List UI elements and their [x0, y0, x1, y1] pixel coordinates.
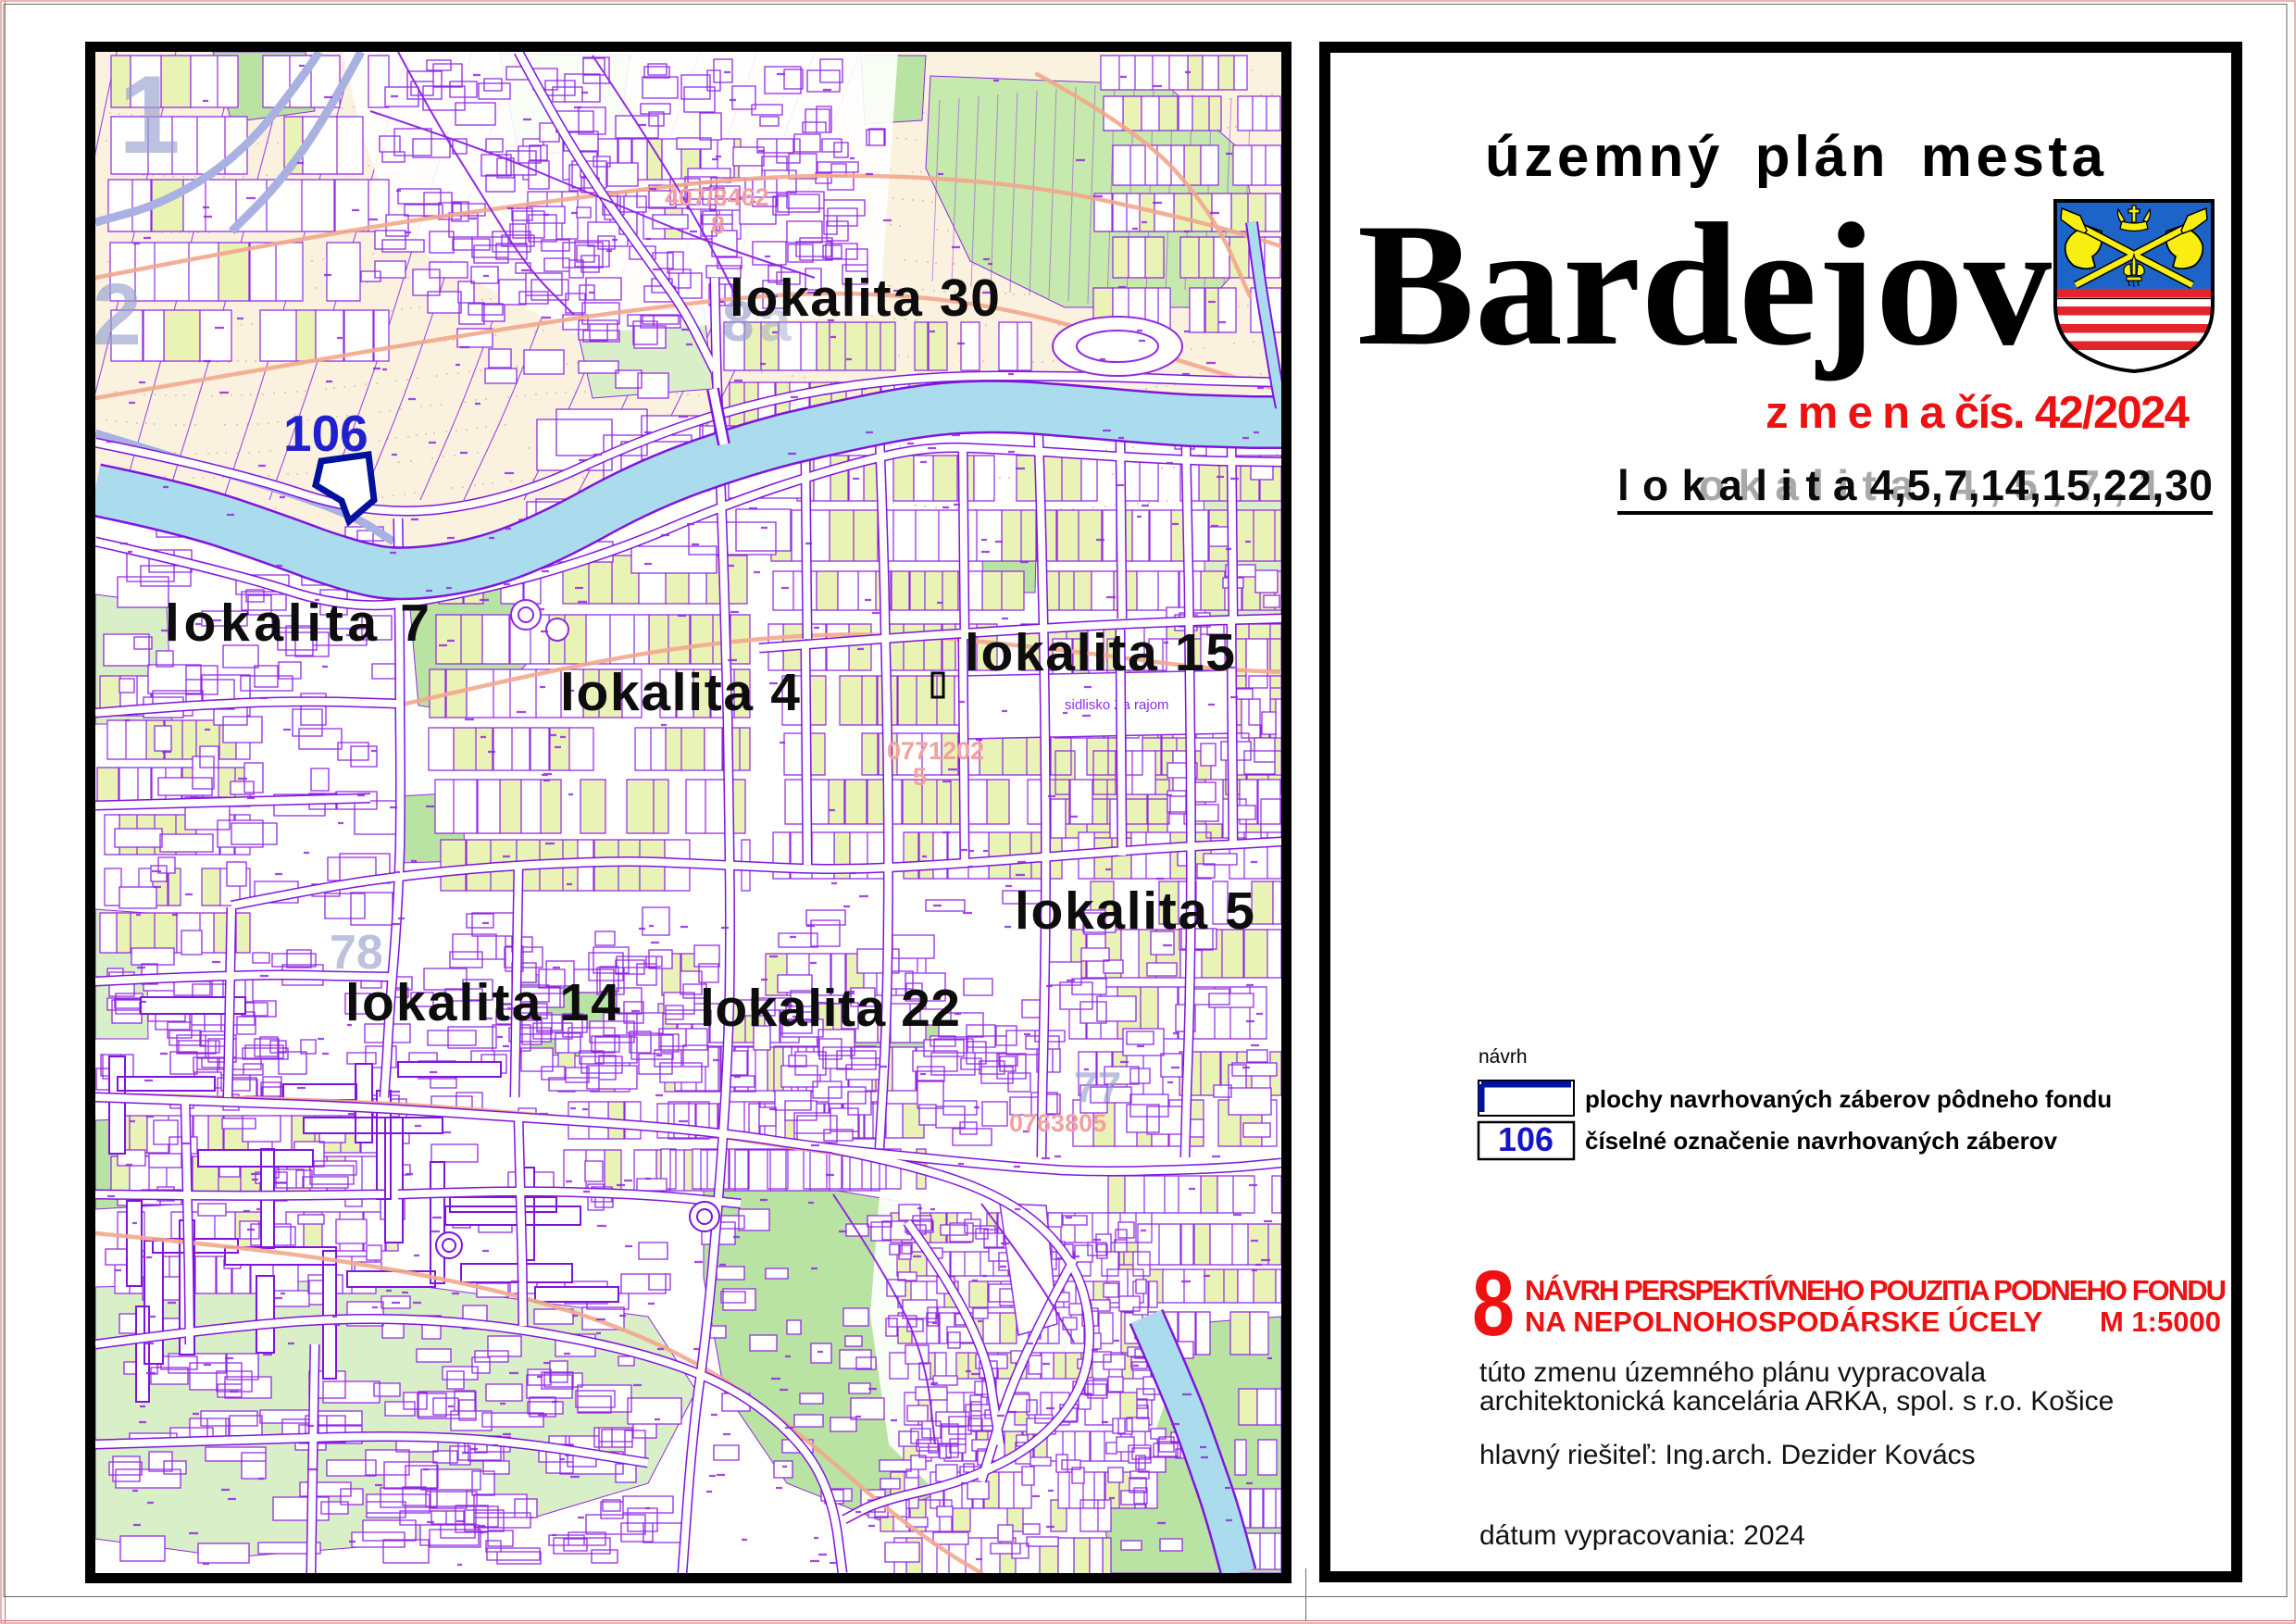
svg-text:územný plán mesta: územný plán mesta	[1485, 125, 2105, 189]
svg-text:túto zmenu územného plánu vypr: túto zmenu územného plánu vypracovala	[1479, 1357, 1986, 1388]
svg-text:plochy navrhovaných záberov pô: plochy navrhovaných záberov pôdneho fond…	[1585, 1085, 2112, 1113]
svg-text:2: 2	[93, 266, 142, 364]
svg-text:8: 8	[1472, 1252, 1515, 1355]
svg-text:NA NEPOLNOHOSPODÁRSKE ÚCELY: NA NEPOLNOHOSPODÁRSKE ÚCELY	[1525, 1305, 2043, 1338]
svg-text:77: 77	[1074, 1063, 1121, 1111]
svg-text:1: 1	[119, 53, 181, 177]
svg-text:0763805: 0763805	[1009, 1109, 1106, 1137]
svg-text:M 1:5000: M 1:5000	[2100, 1305, 2221, 1338]
svg-text:78: 78	[330, 926, 383, 980]
svg-text:dátum vypracovania: 2024: dátum vypracovania: 2024	[1479, 1520, 1805, 1551]
svg-text:návrh: návrh	[1479, 1046, 1528, 1068]
svg-text:hlavný riešiteľ: Ing.arch. Dez: hlavný riešiteľ: Ing.arch. Dezider Kovác…	[1479, 1440, 1976, 1470]
svg-text:lokalita 22: lokalita 22	[700, 979, 960, 1038]
svg-text:106: 106	[283, 405, 368, 462]
svg-text:lokalita 30: lokalita 30	[730, 269, 1000, 328]
svg-text:číselné označenie navrhovaných: číselné označenie navrhovaných záberov	[1585, 1127, 2058, 1155]
svg-text:0771202: 0771202	[887, 737, 984, 765]
svg-text:lokalita 5: lokalita 5	[1015, 881, 1254, 941]
svg-text:407/8462: 407/8462	[665, 183, 769, 211]
svg-text:8: 8	[711, 211, 725, 239]
svg-text:NÁVRH PERSPEKTÍVNEHO POUZITIA: NÁVRH PERSPEKTÍVNEHO POUZITIA PODNEHO FO…	[1525, 1274, 2227, 1306]
svg-text:lokalita 15: lokalita 15	[965, 623, 1235, 682]
svg-text:lokalita 4: lokalita 4	[560, 663, 800, 722]
svg-text:106: 106	[1498, 1120, 1554, 1158]
svg-text:z m e n a čís. 42/2024: z m e n a čís. 42/2024	[1766, 388, 2190, 438]
svg-text:5: 5	[913, 763, 927, 791]
svg-text:lokalita 7: lokalita 7	[165, 593, 430, 653]
svg-text:lokalita 14: lokalita 14	[345, 973, 620, 1032]
svg-text:architektonická kancelária ARK: architektonická kancelária ARKA, spol. s…	[1479, 1386, 2114, 1417]
svg-text:Bardejov: Bardejov	[1357, 188, 2052, 382]
svg-text:l o k a l i t a 4,5,7,14,15,2: l o k a l i t a 4,5,7,14,15,22,30	[1617, 461, 2213, 509]
